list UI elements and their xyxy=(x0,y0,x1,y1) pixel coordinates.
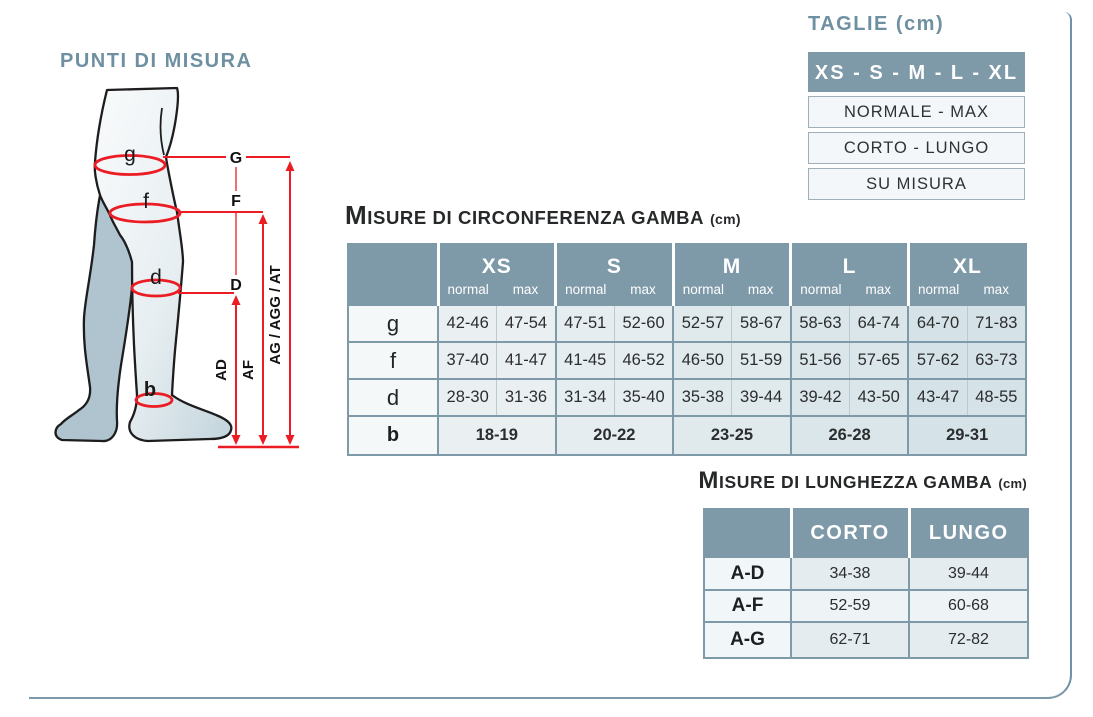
value-cell: 31-34 xyxy=(556,379,615,416)
size-name-xl: XL xyxy=(910,255,1025,279)
value-cell: 47-51 xyxy=(556,305,615,342)
circumference-title-rest: ISURE DI CIRCONFERENZA GAMBA xyxy=(367,207,704,229)
taglie-row-corto-lungo: CORTO - LUNGO xyxy=(808,132,1025,164)
lengths-title-unit: (cm) xyxy=(998,476,1027,491)
lengths-row-ag: A-G 62-71 72-82 xyxy=(704,622,1028,658)
subheader-normal: normal xyxy=(792,282,849,297)
line-label-F: F xyxy=(231,193,241,210)
value-cell: 57-65 xyxy=(850,342,909,379)
value-cell: 41-47 xyxy=(497,342,556,379)
row-label-g: g xyxy=(348,305,438,342)
value-cell: 62-71 xyxy=(791,622,909,658)
lengths-label-af: A-F xyxy=(704,590,791,622)
row-f: f 37-40 41-47 41-45 46-52 46-50 51-59 51… xyxy=(348,342,1026,379)
subheader-normal: normal xyxy=(557,282,614,297)
size-header-s: S normalmax xyxy=(556,244,674,305)
size-name-xs: XS xyxy=(440,255,555,279)
value-cell: 64-74 xyxy=(850,305,909,342)
taglie-title: TAGLIE (cm) xyxy=(808,13,944,36)
length-label-AG-AGG-AT: AG / AGG / AT xyxy=(267,265,284,364)
subheader-normal: normal xyxy=(910,282,968,297)
size-name-s: S xyxy=(557,255,672,279)
arrow-AF-head-bottom xyxy=(259,435,268,445)
value-cell: 41-45 xyxy=(556,342,615,379)
circumference-table: XS normalmax S normalmax M normalmax L n… xyxy=(347,243,1027,456)
taglie-row-normale-max: NORMALE - MAX xyxy=(808,96,1025,128)
subheader-normal: normal xyxy=(440,282,497,297)
value-cell: 51-56 xyxy=(791,342,850,379)
value-cell: 60-68 xyxy=(909,590,1028,622)
figure-title: PUNTI DI MISURA xyxy=(60,50,253,73)
size-header-m: M normalmax xyxy=(673,244,791,305)
value-cell: 57-62 xyxy=(908,342,967,379)
size-header-xl: XL normalmax xyxy=(908,244,1026,305)
value-cell: 39-44 xyxy=(909,557,1028,590)
arrow-AD-head-top xyxy=(232,295,241,305)
taglie-row-su-misura: SU MISURA xyxy=(808,168,1025,200)
circumference-title-unit: (cm) xyxy=(710,211,741,227)
value-cell: 28-30 xyxy=(438,379,497,416)
arrow-AD-head-bottom xyxy=(232,435,241,445)
circumference-header-row: XS normalmax S normalmax M normalmax L n… xyxy=(348,244,1026,305)
value-cell-merged: 23-25 xyxy=(673,416,791,455)
header-corner-cell xyxy=(348,244,438,305)
value-cell: 46-52 xyxy=(614,342,673,379)
circumference-title-lead: M xyxy=(345,200,367,231)
value-cell: 52-60 xyxy=(614,305,673,342)
row-b: b 18-19 20-22 23-25 26-28 29-31 xyxy=(348,416,1026,455)
line-label-D: D xyxy=(230,277,242,294)
value-cell: 47-54 xyxy=(497,305,556,342)
row-label-f: f xyxy=(348,342,438,379)
value-cell: 43-50 xyxy=(850,379,909,416)
lengths-table: CORTO LUNGO A-D 34-38 39-44 A-F 52-59 60… xyxy=(703,508,1029,659)
lengths-label-ad: A-D xyxy=(704,557,791,590)
lengths-header-corto: CORTO xyxy=(791,509,909,557)
row-d: d 28-30 31-36 31-34 35-40 35-38 39-44 39… xyxy=(348,379,1026,416)
value-cell-merged: 29-31 xyxy=(908,416,1026,455)
value-cell: 42-46 xyxy=(438,305,497,342)
subheader-max: max xyxy=(732,282,789,297)
lengths-label-ag: A-G xyxy=(704,622,791,658)
taglie-panel: XS - S - M - L - XL NORMALE - MAX CORTO … xyxy=(808,52,1025,200)
length-label-AF: AF xyxy=(240,360,257,380)
size-header-xs: XS normalmax xyxy=(438,244,556,305)
value-cell: 58-63 xyxy=(791,305,850,342)
value-cell: 39-42 xyxy=(791,379,850,416)
taglie-header: XS - S - M - L - XL xyxy=(808,52,1025,92)
value-cell-merged: 18-19 xyxy=(438,416,556,455)
value-cell: 63-73 xyxy=(967,342,1026,379)
value-cell: 34-38 xyxy=(791,557,909,590)
size-name-m: M xyxy=(675,255,790,279)
row-label-b: b xyxy=(348,416,438,455)
subheader-normal: normal xyxy=(675,282,732,297)
value-cell: 31-36 xyxy=(497,379,556,416)
lengths-row-ad: A-D 34-38 39-44 xyxy=(704,557,1028,590)
point-label-d: d xyxy=(150,266,162,289)
subheader-max: max xyxy=(967,282,1025,297)
value-cell: 52-59 xyxy=(791,590,909,622)
value-cell: 43-47 xyxy=(908,379,967,416)
page: PUNTI DI MISURA xyxy=(0,0,1093,717)
value-cell: 46-50 xyxy=(673,342,732,379)
subheader-max: max xyxy=(497,282,554,297)
point-label-f: f xyxy=(143,190,149,213)
row-g: g 42-46 47-54 47-51 52-60 52-57 58-67 58… xyxy=(348,305,1026,342)
value-cell: 72-82 xyxy=(909,622,1028,658)
lengths-title-lead: M xyxy=(698,467,719,495)
lengths-header-lungo: LUNGO xyxy=(909,509,1028,557)
value-cell-merged: 26-28 xyxy=(791,416,909,455)
value-cell-merged: 20-22 xyxy=(556,416,674,455)
value-cell: 37-40 xyxy=(438,342,497,379)
lengths-header-corner xyxy=(704,509,791,557)
leg-diagram: g f d b G F D AD AF AG / AGG / AT xyxy=(50,75,310,455)
subheader-max: max xyxy=(614,282,671,297)
lengths-row-af: A-F 52-59 60-68 xyxy=(704,590,1028,622)
point-label-g: g xyxy=(124,143,136,166)
line-label-G: G xyxy=(230,150,242,167)
value-cell: 51-59 xyxy=(732,342,791,379)
size-header-l: L normalmax xyxy=(791,244,909,305)
value-cell: 64-70 xyxy=(908,305,967,342)
circumference-title: MISURE DI CIRCONFERENZA GAMBA(cm) xyxy=(345,200,741,231)
value-cell: 71-83 xyxy=(967,305,1026,342)
point-label-b: b xyxy=(144,379,156,401)
value-cell: 39-44 xyxy=(732,379,791,416)
length-label-AD: AD xyxy=(213,359,230,381)
arrow-AG-head-bottom xyxy=(286,435,295,445)
value-cell: 35-38 xyxy=(673,379,732,416)
value-cell: 48-55 xyxy=(967,379,1026,416)
lengths-header-row: CORTO LUNGO xyxy=(704,509,1028,557)
lengths-title-rest: ISURE DI LUNGHEZZA GAMBA xyxy=(719,472,992,493)
size-name-l: L xyxy=(792,255,907,279)
value-cell: 52-57 xyxy=(673,305,732,342)
arrow-AF-head-top xyxy=(259,214,268,224)
lengths-title: MISURE DI LUNGHEZZA GAMBA(cm) xyxy=(703,467,1027,495)
row-label-d: d xyxy=(348,379,438,416)
value-cell: 35-40 xyxy=(614,379,673,416)
value-cell: 58-67 xyxy=(732,305,791,342)
subheader-max: max xyxy=(850,282,907,297)
arrow-AG-head-top xyxy=(286,161,295,171)
